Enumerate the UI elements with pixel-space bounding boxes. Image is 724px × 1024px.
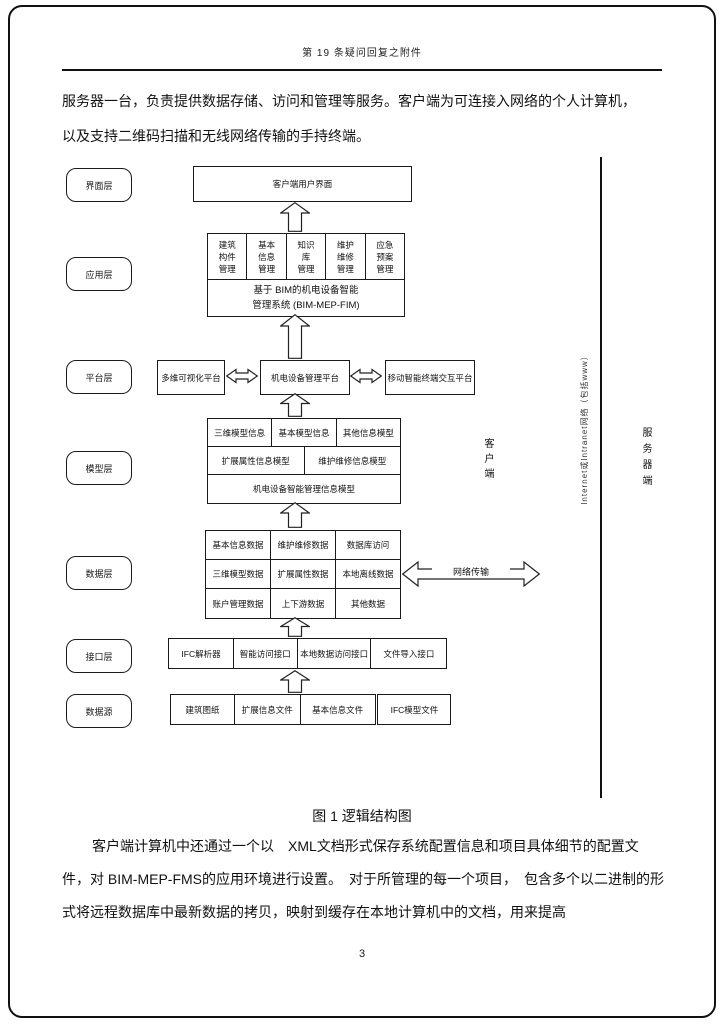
ifc-model-file-box: IFC模型文件: [377, 694, 451, 725]
data-maintenance: 维护维修数据: [271, 531, 336, 559]
platform-mobile-terminal-box: 移动智能终端交互平台: [385, 360, 475, 395]
figure-caption: 图 1 逻辑结构图: [0, 806, 724, 826]
layer-label-data: 数据层: [66, 556, 132, 590]
body-line-2: 件，对 BIM-MEP-FMS的应用环境进行设置。 对于所管理的每一个项目， 包…: [62, 863, 668, 896]
datasource-row: 建筑图纸 扩展信息文件 基本信息文件 IFC模型文件: [170, 694, 451, 725]
data-grid: 基本信息数据 维护维修数据 数据库访问 三维模型数据 扩展属性数据 本地离线数据…: [205, 530, 401, 619]
body-line-3: 式将远程数据库中最新数据的拷贝，映射到缓存在本地计算机中的文档，用来提高: [62, 896, 668, 929]
layer-label-interface-api: 接口层: [66, 639, 132, 673]
file-import-api-box: 文件导入接口: [370, 638, 447, 669]
model-basic-info: 基本模型信息: [272, 419, 336, 446]
platform-visualization-box: 多维可视化平台: [157, 360, 225, 395]
module-building-components: 建筑 构件 管理: [208, 234, 247, 279]
page-header: 第 19 条疑问回复之附件: [0, 44, 724, 59]
up-arrow-source-to-interface: [280, 670, 310, 693]
double-arrow-mep-mobile: [350, 368, 382, 384]
double-arrow-visualization-mep: [226, 368, 258, 384]
layer-label-application: 应用层: [66, 257, 132, 291]
up-arrow-app-to-ui: [280, 202, 310, 232]
bim-mep-fim-system-box: 基于 BIM的机电设备智能 管理系统 (BIM-MEP-FIM): [208, 280, 404, 316]
up-arrow-data-to-model: [280, 502, 310, 528]
data-extended-attr: 扩展属性数据: [271, 560, 336, 588]
model-extended-attr: 扩展属性信息模型: [208, 447, 305, 474]
page-number: 3: [0, 948, 724, 960]
data-other: 其他数据: [336, 589, 400, 618]
intro-paragraph: 服务器一台，负责提供数据存储、访问和管理等服务。客户端为可连接入网络的个人计算机…: [62, 84, 666, 154]
application-system-row: 基于 BIM的机电设备智能 管理系统 (BIM-MEP-FIM): [208, 280, 404, 316]
intro-line-1: 服务器一台，负责提供数据存储、访问和管理等服务。客户端为可连接入网络的个人计算机…: [62, 84, 666, 119]
module-basic-info: 基本 信息 管理: [247, 234, 286, 279]
layer-label-datasource: 数据源: [66, 694, 132, 728]
layer-label-platform: 平台层: [66, 360, 132, 394]
up-arrow-interface-to-data: [280, 617, 310, 637]
building-drawings-box: 建筑图纸: [170, 694, 235, 725]
application-block: 建筑 构件 管理 基本 信息 管理 知识 库 管理 维护 维修 管理 应急 预案…: [207, 233, 405, 317]
extended-info-file-box: 扩展信息文件: [234, 694, 301, 725]
data-account-mgmt: 账户管理数据: [206, 589, 271, 618]
basic-info-file-box: 基本信息文件: [300, 694, 376, 725]
layer-label-model: 模型层: [66, 451, 132, 485]
module-emergency-plan: 应急 预案 管理: [366, 234, 404, 279]
network-note-rotated-label: Internet或Intranet网络（包括www）: [579, 328, 593, 528]
layer-label-interface-ui: 界面层: [66, 168, 132, 202]
model-smart-mgmt-info: 机电设备智能管理信息模型: [208, 475, 400, 503]
model-block: 三维模型信息 基本模型信息 其他信息模型 扩展属性信息模型 维护维修信息模型 机…: [207, 418, 401, 504]
server-side-label: 服务器端: [638, 427, 653, 491]
model-maintenance-info: 维护维修信息模型: [305, 447, 401, 474]
network-transfer-label: 网络传输: [432, 565, 510, 578]
body-paragraph: 客户端计算机中还通过一个以 XML文档形式保存系统配置信息和项目具体细节的配置文…: [62, 830, 668, 929]
platform-mep-management-box: 机电设备管理平台: [260, 360, 350, 395]
up-arrow-platform-to-app: [280, 314, 310, 359]
model-other-info: 其他信息模型: [337, 419, 400, 446]
ifc-parser-box: IFC解析器: [168, 638, 234, 669]
application-modules-row: 建筑 构件 管理 基本 信息 管理 知识 库 管理 维护 维修 管理 应急 预案…: [208, 234, 404, 280]
data-db-access: 数据库访问: [336, 531, 400, 559]
module-knowledge-base: 知识 库 管理: [287, 234, 326, 279]
data-up-downstream: 上下游数据: [271, 589, 336, 618]
local-data-access-api-box: 本地数据访问接口: [297, 638, 372, 669]
client-server-divider-line: [600, 157, 602, 798]
data-local-offline: 本地离线数据: [336, 560, 400, 588]
module-maintenance: 维护 维修 管理: [326, 234, 365, 279]
model-3d-info: 三维模型信息: [208, 419, 272, 446]
up-arrow-model-to-platform: [280, 393, 310, 417]
client-side-label: 客户端: [480, 438, 495, 483]
document-page: 第 19 条疑问回复之附件 服务器一台，负责提供数据存储、访问和管理等服务。客户…: [0, 0, 724, 1024]
data-basic-info: 基本信息数据: [206, 531, 271, 559]
header-rule: [62, 69, 662, 71]
body-line-1: 客户端计算机中还通过一个以 XML文档形式保存系统配置信息和项目具体细节的配置文: [62, 830, 668, 863]
intro-line-2: 以及支持二维码扫描和无线网络传输的手持终端。: [62, 119, 666, 154]
data-3d-model: 三维模型数据: [206, 560, 271, 588]
smart-access-api-box: 智能访问接口: [233, 638, 298, 669]
interface-row: IFC解析器 智能访问接口 本地数据访问接口 文件导入接口: [168, 638, 447, 669]
client-ui-box: 客户端用户界面: [193, 166, 412, 202]
